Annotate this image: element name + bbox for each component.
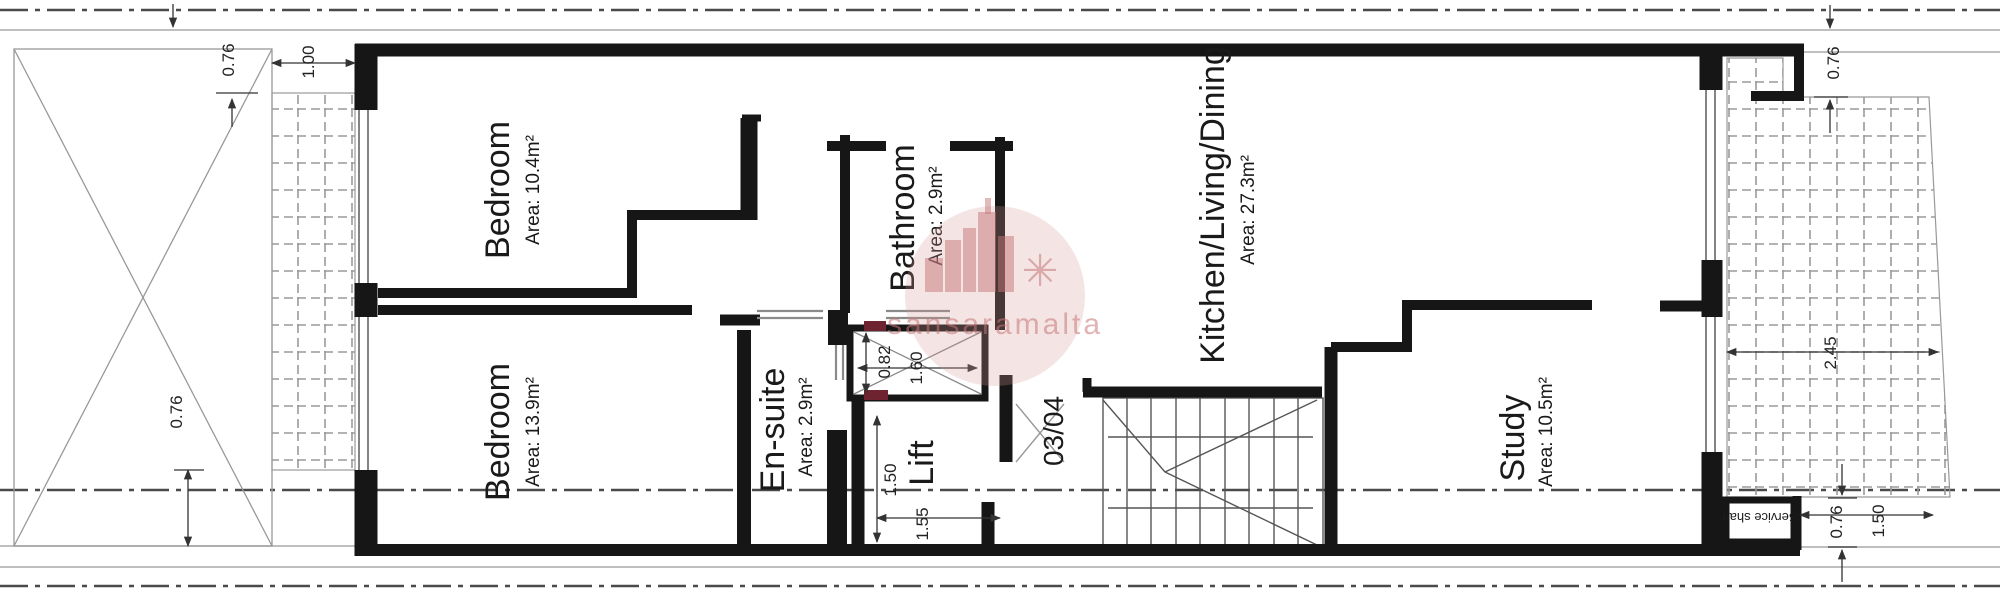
dim-terrace-width: 2.45: [1821, 336, 1840, 369]
room-ensuite-name: En-suite: [754, 368, 792, 493]
room-bedroom-back-area: Area: 13.9m²: [523, 377, 544, 487]
dim-lift-width: 1.55: [913, 507, 932, 540]
room-kitchen-area: Area: 27.3m²: [1238, 155, 1259, 265]
room-study-area: Area: 10.5m²: [1536, 377, 1557, 487]
dim-setback-bottom-right: 0.76: [1827, 505, 1846, 538]
dim-lift-shaft-depth: 0.82: [875, 345, 894, 378]
adjacent-roof-x: [14, 49, 272, 546]
room-bedroom-back-name: Bedroom: [479, 363, 517, 501]
dim-setback-top-left: 0.76: [219, 43, 238, 76]
room-ensuite-area: Area: 2.9m²: [796, 377, 817, 476]
service-shaft-label: Service shaft: [1722, 510, 1798, 525]
room-bedroom-front-name: Bedroom: [479, 121, 517, 259]
dim-setback-bottom-left: 0.76: [167, 395, 186, 428]
dim-lift-depth: 1.50: [881, 463, 900, 496]
watermark-text: sansaramalta: [887, 308, 1103, 341]
room-study-name: Study: [1494, 395, 1532, 482]
windmill-icon: ✳: [1022, 247, 1059, 296]
dim-setback-top-right: 0.76: [1824, 46, 1843, 79]
dim-balcony-width: 1.00: [299, 45, 318, 78]
room-lift-name: Lift: [903, 440, 941, 486]
floor-plan-drawing: 0.76 1.00 0.76 0.82 1.60 1.50 1.55 0.76 …: [0, 0, 2000, 593]
room-kitchen-name: Kitchen/Living/Dining: [1194, 46, 1232, 364]
dim-terrace-return: 1.50: [1869, 504, 1888, 537]
floor-plan: 0.76 1.00 0.76 0.82 1.60 1.50 1.55 0.76 …: [0, 0, 2000, 593]
terrace-right: [1727, 58, 1950, 497]
unit-number-label: 03/04: [1038, 396, 1069, 466]
balcony-left: [272, 93, 355, 470]
room-labels: Bedroom Area: 10.4m² Bedroom Area: 13.9m…: [479, 46, 1798, 525]
room-bedroom-front-area: Area: 10.4m²: [523, 135, 544, 245]
dim-lift-shaft-width: 1.60: [907, 351, 926, 384]
staircase: [1103, 398, 1323, 545]
